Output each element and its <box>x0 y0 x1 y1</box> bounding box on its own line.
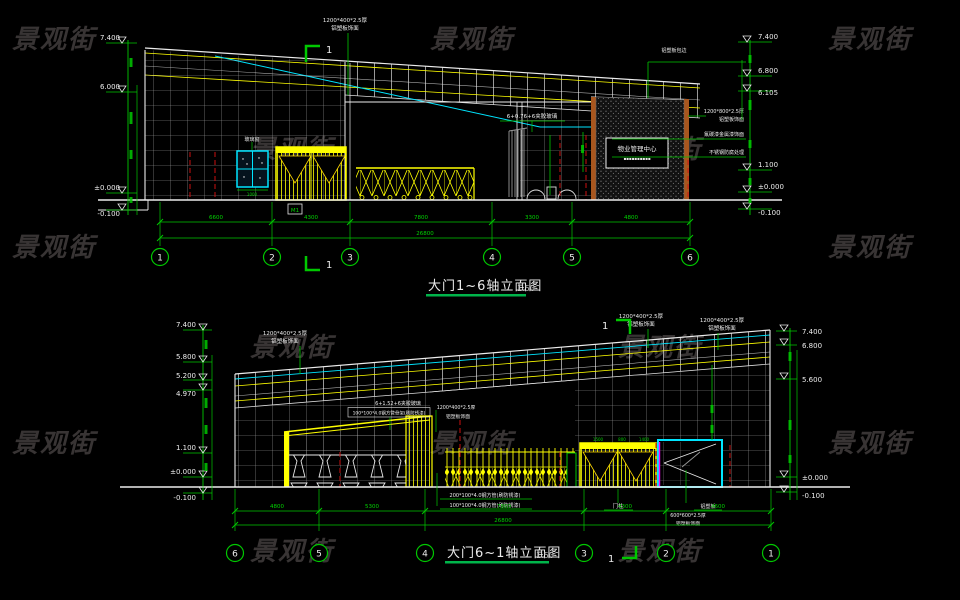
sign-board <box>606 138 668 168</box>
annotation-text: 铝塑板饰面 <box>446 413 470 420</box>
level-label: 1.100 <box>176 444 196 452</box>
fence-post <box>567 453 576 487</box>
annotation-text: 200*100*4.0钢方管(刷防锈漆) <box>450 492 521 499</box>
level-label: 7.400 <box>758 33 778 41</box>
level-label: -0.100 <box>173 494 196 502</box>
view-scale: 1:50 <box>536 551 554 560</box>
level-label: 6.800 <box>802 342 822 350</box>
axis-number: 6 <box>687 254 693 264</box>
section-number: 1 <box>602 321 608 332</box>
annotation-text: 1200*400*2.5厚 <box>323 17 368 24</box>
annotation-text: 铝塑板饰面 <box>331 24 359 32</box>
level-label: 5.800 <box>176 353 196 361</box>
top-sign-wall: 物业管理中心 ▪▪▪▪▪▪▪▪▪▪ <box>581 97 689 200</box>
dim-total-text: 26800 <box>416 231 434 237</box>
level-label: 7.400 <box>802 328 822 336</box>
level-label: 5.200 <box>176 372 196 380</box>
dim-total-text: 26800 <box>494 518 512 524</box>
level-label: 7.400 <box>100 34 120 42</box>
annotation-text: 1200*800*2.5厚 <box>704 109 744 115</box>
section-number: 1 <box>608 554 614 565</box>
annotation-text: 6+1.52+6夹胶玻璃 <box>375 400 421 407</box>
axis-number: 3 <box>347 254 353 264</box>
level-label: ±0.000 <box>170 468 196 476</box>
section-number: 1 <box>326 45 332 56</box>
annotation-text: 铝塑板饰面 <box>719 116 744 123</box>
axis-number: 3 <box>581 550 587 560</box>
axis-number: 6 <box>232 550 238 560</box>
dim-text: 7800 <box>414 215 428 221</box>
watermark-text: 景观街 <box>828 25 915 55</box>
annotation-text: 1200*400*2.5厚 <box>263 330 308 337</box>
portal-post <box>284 432 289 487</box>
level-label: ±0.000 <box>802 474 828 482</box>
top-title: 大门1~6轴立面图 1:50 <box>426 279 542 297</box>
bottom-cyan-opening <box>658 440 722 487</box>
level-label: -0.100 <box>758 209 781 217</box>
axis-number: 2 <box>269 254 275 264</box>
annotation-text: 100*100*4.0钢方管骨架(刷防锈漆) <box>353 410 426 417</box>
dim-text: 4600 <box>711 504 725 510</box>
level-label: 4.970 <box>176 390 196 398</box>
level-label: ±0.000 <box>94 184 120 192</box>
axis-number: 4 <box>422 550 428 560</box>
annotation-text: 铝塑板饰面 <box>676 520 700 527</box>
level-label: ±0.000 <box>758 183 784 191</box>
watermark-text: 景观街 <box>430 25 517 55</box>
section-number: 1 <box>326 260 332 271</box>
level-label: 6.105 <box>758 89 778 97</box>
annotation-text: 不锈钢防腐处理 <box>709 149 744 156</box>
dim-text: 4800 <box>270 504 284 510</box>
annotation-text: 600*600*2.5厚 <box>670 513 706 519</box>
dim-text: 7800 <box>497 504 511 510</box>
annotation-text: 铝塑板饰面 <box>708 324 736 332</box>
view-scale: 1:50 <box>517 284 535 293</box>
dim-text: 6600 <box>209 215 223 221</box>
dim-text: 5300 <box>365 504 379 510</box>
watermark-text: 景观街 <box>828 233 915 263</box>
axis-number: 2 <box>663 550 669 560</box>
watermark-text: 景观街 <box>828 429 915 459</box>
title-underline <box>426 294 526 297</box>
window-label: 玻璃窗 <box>244 136 259 143</box>
sign-text: 物业管理中心 <box>618 144 658 153</box>
gate-dim: 800 <box>618 437 626 442</box>
level-label: 7.400 <box>176 321 196 329</box>
gate-dim: 1400 <box>639 437 650 442</box>
portal-pylon <box>406 416 432 487</box>
bottom-picket-fence <box>445 448 576 487</box>
watermark-text: 景观街 <box>12 429 99 459</box>
annotation-text: 铝塑板饰面 <box>627 320 655 328</box>
dim-text: 4300 <box>618 504 632 510</box>
baluster-row <box>289 455 406 487</box>
dim-text: 4300 <box>304 215 318 221</box>
cad-svg: 景观街 景观街 景观街 景观街 景观街 景观街 景观街 景观街 景观街 景观街 … <box>0 0 960 600</box>
level-label: 1.100 <box>758 161 778 169</box>
axis-number: 4 <box>489 254 495 264</box>
door-tag: M1 <box>291 208 299 214</box>
annotation-text: 1200*400*2.5厚 <box>700 317 745 324</box>
gate-dim: 1500 <box>593 437 604 442</box>
title-underline <box>445 561 549 564</box>
brown-column-left <box>591 97 596 200</box>
annotation-text: 铝塑板包边 <box>661 47 686 54</box>
level-label: 6.800 <box>758 67 778 75</box>
annotation-text: 氟碳漆金属漆饰面 <box>704 131 744 138</box>
level-label: 6.000 <box>100 83 120 91</box>
dim-text: 4800 <box>624 215 638 221</box>
level-label: 5.600 <box>802 376 822 384</box>
bottom-title: 大门6~1轴立面图 1:50 <box>445 546 561 564</box>
curtain-lines <box>509 128 527 197</box>
watermark-text: 景观街 <box>12 233 99 263</box>
annotation-text: 1200*400*2.5厚 <box>437 405 476 411</box>
window-dim: 1000 <box>247 192 258 197</box>
watermark-text: 景观街 <box>12 25 99 55</box>
annotation-text: 6+0.76+6夹胶玻璃 <box>507 112 558 120</box>
axis-number: 5 <box>569 254 575 264</box>
axis-number: 1 <box>157 254 163 264</box>
bottom-main-gate: 1500 800 1400 <box>580 437 656 487</box>
dim-text: 3300 <box>525 215 539 221</box>
level-label: -0.100 <box>97 210 120 218</box>
annotation-text: 铝塑板饰面 <box>271 337 299 345</box>
level-label: -0.100 <box>802 492 825 500</box>
axis-number: 5 <box>316 550 322 560</box>
top-accordion-fence <box>356 168 474 200</box>
cad-drawing-canvas: 景观街 景观街 景观街 景观街 景观街 景观街 景观街 景观街 景观街 景观街 … <box>0 0 960 600</box>
watermark-text: 景观街 <box>250 333 337 363</box>
axis-number: 1 <box>768 550 774 560</box>
